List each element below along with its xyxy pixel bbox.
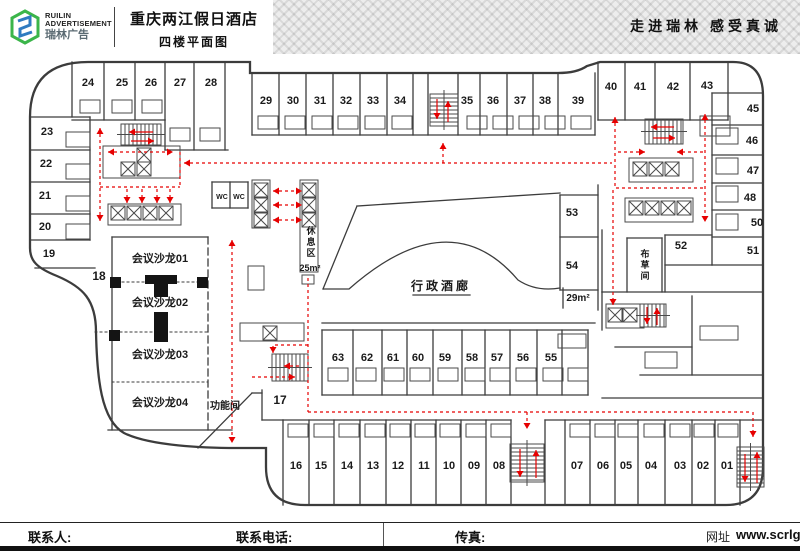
room-label: 46 [746,135,758,147]
route-arrow [296,202,302,209]
footer-band: 联系人: 联系电话: 传真: 网址 www.scrlgg.com [0,522,800,546]
elevator-icon [302,213,316,227]
room-label: 52 [675,240,687,252]
room-label: 57 [491,352,503,364]
elevator-icon [137,148,151,162]
room-label: 45 [747,103,759,115]
room-label: 14 [341,460,354,472]
room-label: 会议沙龙03 [132,347,188,361]
room-label: 53 [566,207,578,219]
route-arrow [750,431,757,437]
route-arrow [702,114,709,120]
fixture [312,116,332,129]
room-label: 会议沙龙02 [132,295,188,309]
route-arrow [284,363,290,370]
room-label: 47 [747,165,759,177]
web-label: 网址 [706,528,730,545]
room-label: 26 [145,77,157,89]
room-label: 24 [82,77,95,89]
route-arrow [97,215,104,221]
fixture [465,368,485,381]
fixture [694,424,714,437]
route-arrow [270,347,277,353]
fixture [645,352,677,368]
fixture [142,100,162,113]
room-label: 会议沙龙04 [132,395,189,409]
room-label: 07 [571,460,583,472]
room-label: 间 [640,270,649,281]
fixture [200,128,220,141]
room-label: 58 [466,352,478,364]
room-label: 35 [461,95,473,107]
room-label: 54 [566,260,579,272]
room-label: 37 [514,95,526,107]
partition-block [109,330,120,341]
route-arrow [702,216,709,222]
route-arrow [296,188,302,195]
fixture [392,116,412,129]
fixture [356,368,376,381]
fixture [66,196,90,211]
room-label: 22 [40,158,52,170]
room-label: 29 [260,95,272,107]
room-label: 12 [392,460,404,472]
fixture [516,368,536,381]
evacuation-route [273,345,308,353]
room-label: 区 [306,248,315,258]
room-label: 48 [744,192,756,204]
route-arrow [229,437,236,443]
fixture [571,116,591,129]
elevator-icon [143,206,157,220]
route-arrow [139,197,146,203]
page: RUILIN ADVERTISEMENT 瑞林广告 重庆两江假日酒店 四楼平面图… [0,0,800,551]
fixture [328,368,348,381]
fixture [66,224,90,239]
route-arrow [154,197,161,203]
elevator-icon [649,162,663,176]
elevator-icon [263,326,277,340]
elevator-icon [254,213,268,227]
fixture [410,368,430,381]
room-label: 34 [394,95,407,107]
fixture [543,368,563,381]
room-label: 会议沙龙01 [132,251,188,265]
fixture [618,424,638,437]
labels-layer: 2425262728232221201918293031323334353637… [39,77,763,472]
fixture [339,424,359,437]
room-label: 38 [539,95,551,107]
fixture [288,424,308,437]
room-label: 功能间 [210,399,240,412]
fixture [493,116,513,129]
fax-label: 传真: [455,527,485,546]
partition-block [154,312,168,342]
elevator-icon [633,162,647,176]
contact-label: 联系人: [28,527,71,546]
room-label: 13 [367,460,379,472]
fixture [716,158,738,174]
room-label: 63 [332,352,344,364]
elevator-icon [302,183,316,197]
elevator-icon [677,201,691,215]
route-arrow [639,149,645,156]
room-label: 01 [721,460,733,472]
fixture [390,424,410,437]
route-arrow [524,423,531,429]
elevator-icon [121,162,135,176]
fixture [415,424,435,437]
route-arrow [296,217,302,224]
fixture [112,100,132,113]
fixture [66,132,90,147]
route-arrow [97,128,104,134]
stairs-icon [117,124,165,145]
route-arrow [654,308,661,314]
elevator-icon [159,206,173,220]
room-label: 36 [487,95,499,107]
route-arrow [677,149,683,156]
room-label: 17 [273,393,287,407]
fixture [170,128,190,141]
room-label: 25 [116,77,128,89]
fixture [716,214,738,230]
stairs-icon [510,440,544,486]
fixture [338,116,358,129]
room-label: 草 [640,259,649,270]
route-arrow [644,318,651,324]
room-label: WC [216,194,228,201]
room-label: 09 [468,460,480,472]
fixture [644,424,664,437]
partition-block [110,277,121,288]
route-arrow [669,135,675,142]
route-arrow [651,124,657,131]
room-label: 休 [305,225,316,236]
fixture [438,368,458,381]
floor-plan: 2425262728232221201918293031323334353637… [0,0,800,551]
room-label: 19 [43,248,55,260]
room-label: 55 [545,352,557,364]
shaft-outline [248,266,264,290]
wall-path [323,193,560,289]
elevator-icon [645,201,659,215]
fixture [467,116,487,129]
stairs-icon [641,119,687,144]
room-label: 42 [667,81,679,93]
website-url: www.scrlgg.com [736,527,800,542]
elevator-icon [127,206,141,220]
route-arrow [108,149,114,156]
room-label: 04 [645,460,658,472]
elevator-icon [665,162,679,176]
room-label: 27 [174,77,186,89]
elevator-icon [111,206,125,220]
route-arrow [124,197,131,203]
room-label: 33 [367,95,379,107]
room-label: 25m² [299,263,320,273]
room-label: 05 [620,460,632,472]
elevator-icon [302,198,316,212]
route-arrow [229,240,236,246]
room-label: 11 [418,460,430,472]
fixture [314,424,334,437]
partition-block [197,277,208,288]
room-label: 行政酒廊 [410,278,471,293]
elevator-icon [254,183,268,197]
room-label: WC [233,194,245,201]
elevator-icon [629,201,643,215]
fixture [700,326,738,340]
room-label: 23 [41,126,53,138]
room-label: 43 [701,80,713,92]
room-label: 06 [597,460,609,472]
route-arrow [533,450,540,456]
room-label: 28 [205,77,217,89]
fixture [670,424,690,437]
room-label: 40 [605,81,617,93]
room-label: 30 [287,95,299,107]
room-label: 32 [340,95,352,107]
fixture [365,424,385,437]
fixture [568,368,588,381]
elevator-icon [623,308,637,322]
footer-black-bar [0,546,800,551]
room-label: 60 [412,352,424,364]
elevator-icon [661,201,675,215]
fixture [716,186,738,202]
room-label: 31 [314,95,326,107]
room-label: 56 [517,352,529,364]
room-label: 59 [439,352,451,364]
room-label: 布 [639,248,649,259]
elevator-icon [254,198,268,212]
room-label: 10 [443,460,455,472]
room-label: 51 [747,245,759,257]
elevator-icon [608,308,622,322]
room-label: 20 [39,221,51,233]
fixture [718,424,738,437]
route-arrow [184,160,190,167]
room-label: 15 [315,460,327,472]
partition-block [154,284,168,297]
stairs-icon [636,304,670,327]
room-label: 62 [361,352,373,364]
fixture [80,100,100,113]
room-label: 16 [290,460,302,472]
room-label: 61 [387,352,399,364]
fixture [258,116,278,129]
fixture [519,116,539,129]
route-arrow [167,197,174,203]
fixture [595,424,615,437]
room-label: 41 [634,81,646,93]
shaft-outline [252,180,270,228]
route-arrow [273,188,279,195]
fixture [545,116,565,129]
fixture [384,368,404,381]
room-label: 03 [674,460,686,472]
footer-divider [383,523,384,547]
room-label: 29m² [566,293,590,304]
room-label: 50 [751,217,763,229]
room-label: 息 [306,236,315,247]
room-label: 39 [572,95,584,107]
fixture [365,116,385,129]
fixture [440,424,460,437]
fixture [570,424,590,437]
fixture [491,424,511,437]
fixture [285,116,305,129]
route-arrow [273,202,279,209]
fixture [466,424,486,437]
room-label: 21 [39,190,51,202]
stairs-icon [430,90,458,130]
room-label: 08 [493,460,505,472]
phone-label: 联系电话: [236,527,292,546]
room-label: 02 [697,460,709,472]
elevator-icon [137,162,151,176]
room-label: 18 [92,269,106,283]
route-arrow [440,143,447,149]
fixture [490,368,510,381]
fixture [66,164,90,179]
route-arrow [273,217,279,224]
partition-block [145,275,177,284]
